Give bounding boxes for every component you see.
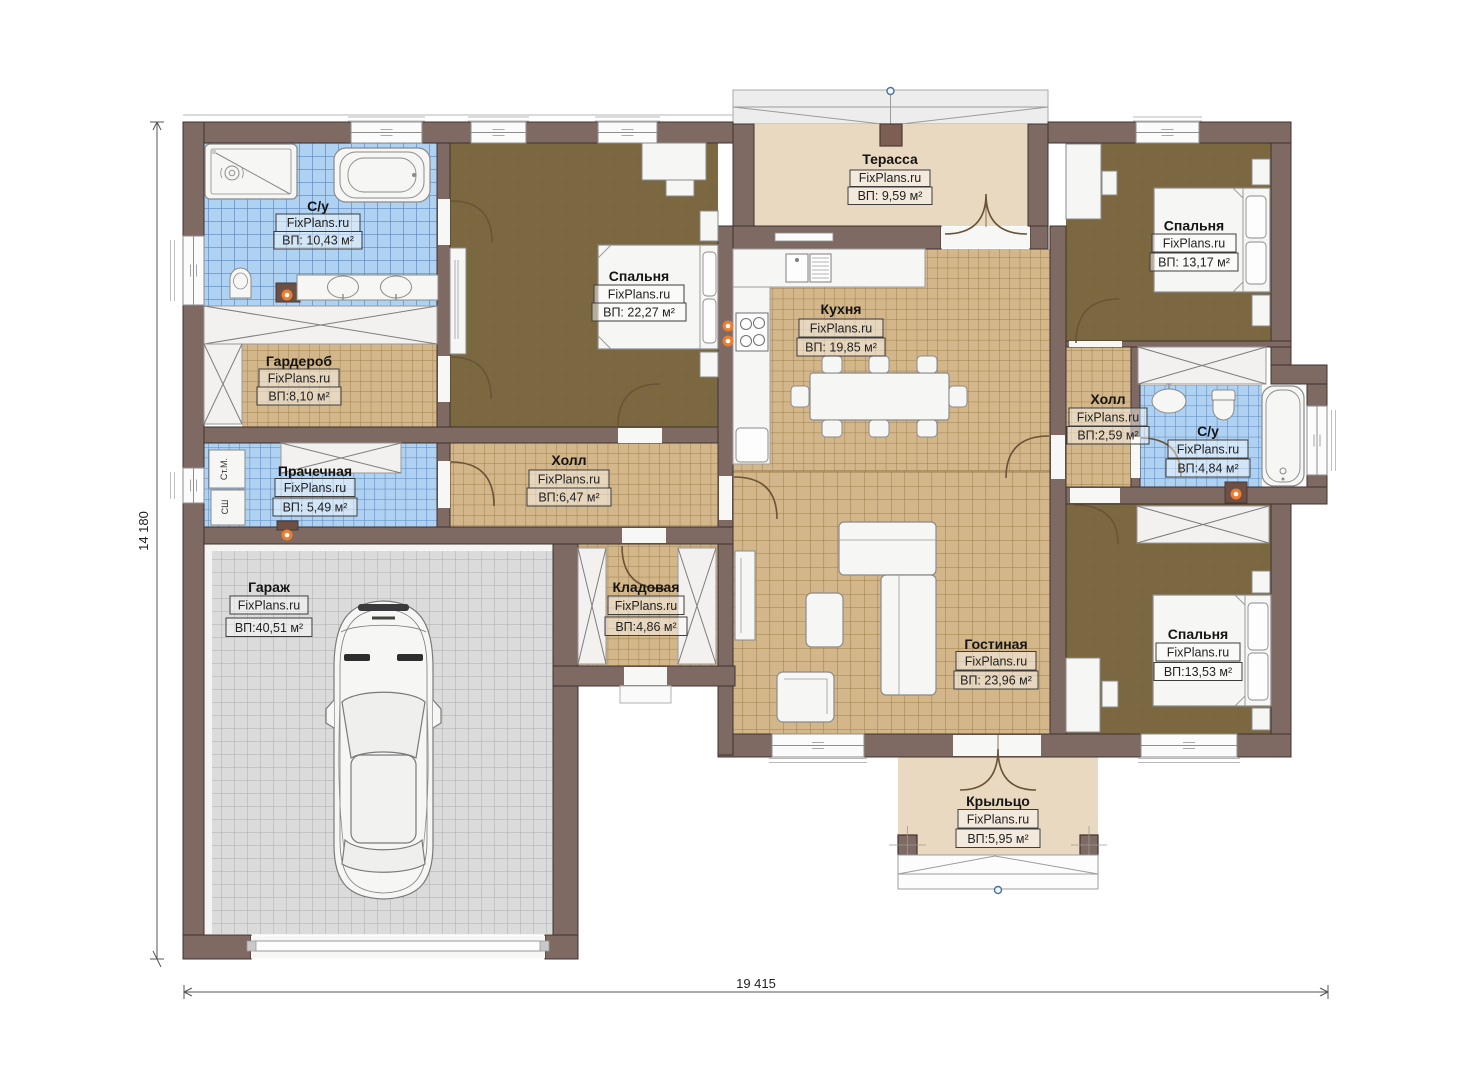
svg-text:FixPlans.ru: FixPlans.ru <box>238 599 301 613</box>
svg-text:FixPlans.ru: FixPlans.ru <box>859 171 922 185</box>
svg-text:ВП: 10,43 м²: ВП: 10,43 м² <box>282 234 354 248</box>
svg-text:FixPlans.ru: FixPlans.ru <box>1167 646 1230 660</box>
svg-text:FixPlans.ru: FixPlans.ru <box>810 322 873 336</box>
svg-text:ВП: 22,27 м²: ВП: 22,27 м² <box>603 306 675 320</box>
svg-text:FixPlans.ru: FixPlans.ru <box>1077 411 1140 425</box>
svg-text:FixPlans.ru: FixPlans.ru <box>538 473 601 487</box>
svg-text:ВП:2,59 м²: ВП:2,59 м² <box>1077 429 1138 443</box>
svg-text:ВП: 13,17 м²: ВП: 13,17 м² <box>1158 256 1230 270</box>
svg-text:FixPlans.ru: FixPlans.ru <box>287 216 350 230</box>
svg-text:Холл: Холл <box>1090 391 1125 407</box>
svg-text:ВП:4,86 м²: ВП:4,86 м² <box>615 620 676 634</box>
svg-text:Кухня: Кухня <box>821 301 862 317</box>
svg-text:19 415: 19 415 <box>736 976 776 991</box>
svg-text:FixPlans.ru: FixPlans.ru <box>1163 237 1226 251</box>
svg-text:FixPlans.ru: FixPlans.ru <box>268 372 331 386</box>
svg-text:Гардероб: Гардероб <box>266 353 333 369</box>
svg-text:FixPlans.ru: FixPlans.ru <box>615 599 678 613</box>
svg-text:ВП: 19,85 м²: ВП: 19,85 м² <box>805 341 877 355</box>
svg-text:FixPlans.ru: FixPlans.ru <box>967 813 1030 827</box>
svg-text:Кладовая: Кладовая <box>612 579 679 595</box>
svg-text:Холл: Холл <box>551 452 586 468</box>
svg-text:14 180: 14 180 <box>136 511 151 551</box>
svg-text:FixPlans.ru: FixPlans.ru <box>284 481 347 495</box>
svg-text:ВП:6,47 м²: ВП:6,47 м² <box>538 491 599 505</box>
svg-text:ВП:4,84 м²: ВП:4,84 м² <box>1177 462 1238 476</box>
svg-text:Гараж: Гараж <box>248 579 291 595</box>
svg-text:FixPlans.ru: FixPlans.ru <box>965 655 1028 669</box>
svg-text:Ст.М.: Ст.М. <box>219 458 229 480</box>
svg-text:FixPlans.ru: FixPlans.ru <box>608 288 671 302</box>
svg-text:С/у: С/у <box>1197 423 1219 439</box>
svg-text:Спальня: Спальня <box>609 268 669 284</box>
svg-text:ВП: 5,49 м²: ВП: 5,49 м² <box>283 501 348 515</box>
svg-text:ВП: 9,59 м²: ВП: 9,59 м² <box>858 189 923 203</box>
svg-text:Прачечная: Прачечная <box>278 463 352 479</box>
svg-text:ВП:40,51 м²: ВП:40,51 м² <box>235 621 303 635</box>
svg-text:СШ: СШ <box>220 500 230 515</box>
svg-text:ВП:8,10 м²: ВП:8,10 м² <box>268 390 329 404</box>
svg-text:ВП:5,95 м²: ВП:5,95 м² <box>967 832 1028 846</box>
svg-text:ВП:13,53 м²: ВП:13,53 м² <box>1164 665 1232 679</box>
svg-text:Спальня: Спальня <box>1164 218 1224 234</box>
svg-text:Гостиная: Гостиная <box>964 636 1027 652</box>
svg-text:FixPlans.ru: FixPlans.ru <box>1177 443 1240 457</box>
svg-text:С/у: С/у <box>307 198 329 214</box>
svg-text:Крыльцо: Крыльцо <box>966 793 1030 809</box>
svg-text:Терасса: Терасса <box>862 151 918 167</box>
svg-text:Спальня: Спальня <box>1168 626 1228 642</box>
svg-text:ВП: 23,96 м²: ВП: 23,96 м² <box>960 674 1032 688</box>
